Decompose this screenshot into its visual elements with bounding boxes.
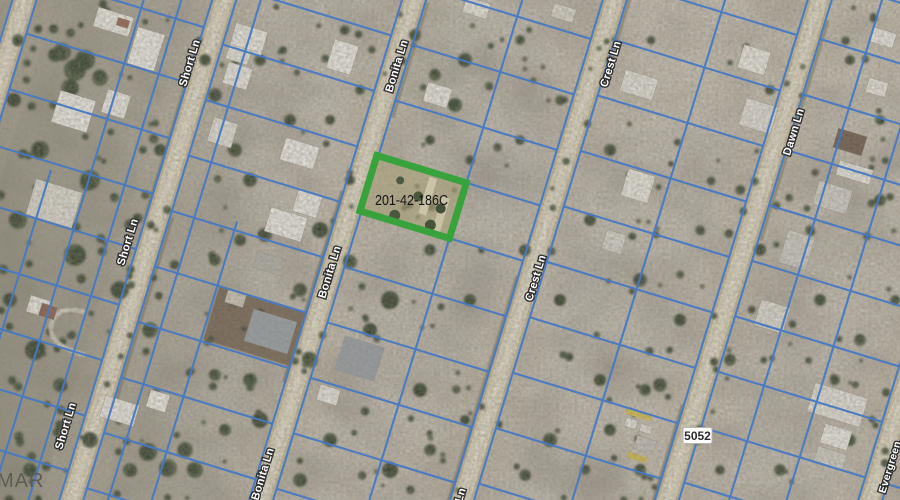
svg-text:MAR: MAR (0, 470, 44, 492)
svg-text:201-42-186C: 201-42-186C (375, 192, 448, 209)
svg-text:5052: 5052 (684, 429, 711, 443)
